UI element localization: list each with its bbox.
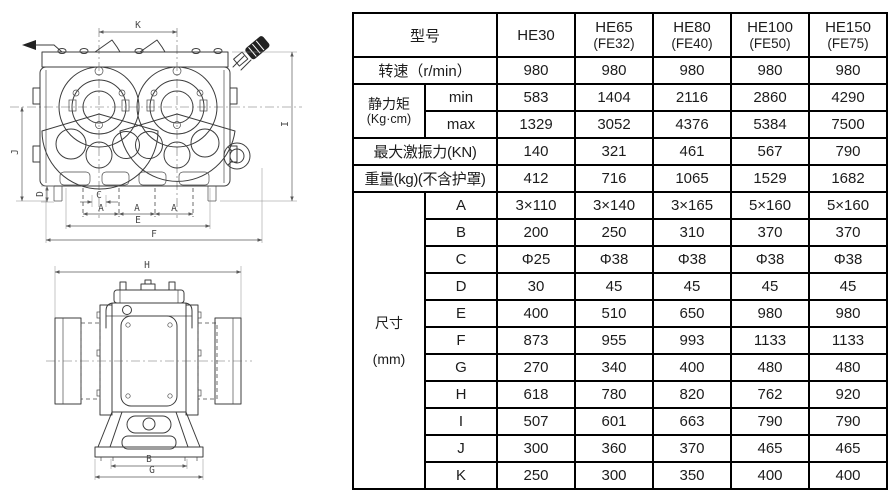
dim-value: 45 [809, 273, 887, 300]
max-value: 5384 [731, 111, 809, 138]
dim-label-c: C [96, 190, 102, 201]
dim-row-d: D 30 45 45 45 45 [353, 273, 887, 300]
dim-value: 465 [809, 435, 887, 462]
dim-label-i: I [280, 121, 291, 127]
max-excitation-row: 最大激振力(KN) 140 321 461 567 790 [353, 138, 887, 165]
dim-value: 270 [497, 354, 575, 381]
dim-value: 45 [575, 273, 653, 300]
dim-row-i: I 507 601 663 790 790 [353, 408, 887, 435]
dim-key: D [425, 273, 497, 300]
dim-value: 370 [731, 219, 809, 246]
dim-label-e: E [135, 215, 141, 226]
dim-value: 663 [653, 408, 731, 435]
dim-value: 465 [731, 435, 809, 462]
weight-value: 1065 [653, 165, 731, 192]
dim-value: 350 [653, 462, 731, 489]
dim-value: 370 [653, 435, 731, 462]
dim-value: 3×110 [497, 192, 575, 219]
dim-row-c: C Φ25 Φ38 Φ38 Φ38 Φ38 [353, 246, 887, 273]
excitation-value: 321 [575, 138, 653, 165]
min-label: min [425, 84, 497, 111]
dim-value: 3×140 [575, 192, 653, 219]
model-he100: HE100 (FE50) [731, 13, 809, 57]
dim-value: 1133 [809, 327, 887, 354]
dim-label-a2: A [134, 203, 140, 214]
dim-label-b: B [146, 454, 152, 465]
speed-value: 980 [653, 57, 731, 84]
mount-hole [143, 418, 155, 430]
dim-value: Φ38 [575, 246, 653, 273]
eccentric-weights [42, 114, 235, 189]
static-moment-max-row: max 1329 3052 4376 5384 7500 [353, 111, 887, 138]
dim-value: 200 [497, 219, 575, 246]
min-value: 583 [497, 84, 575, 111]
dim-label-a3: A [171, 203, 177, 214]
dim-label-a1: A [98, 203, 104, 214]
dim-value: 993 [653, 327, 731, 354]
dim-key: E [425, 300, 497, 327]
max-value: 7500 [809, 111, 887, 138]
dim-value: 820 [653, 381, 731, 408]
dim-row-j: J 300 360 370 465 465 [353, 435, 887, 462]
spec-table-container: 型号 HE30 HE65 (FE32) HE80 (FE40) HE100 (F… [352, 12, 888, 490]
dim-value: 300 [497, 435, 575, 462]
max-label: max [425, 111, 497, 138]
weight-value: 1529 [731, 165, 809, 192]
dim-key: I [425, 408, 497, 435]
dimensions-label: 尺寸 (mm) [353, 192, 425, 489]
dim-key: G [425, 354, 497, 381]
dim-label-h: H [144, 260, 150, 271]
speed-value: 980 [809, 57, 887, 84]
speed-value: 980 [497, 57, 575, 84]
weight-value: 412 [497, 165, 575, 192]
dim-key: H [425, 381, 497, 408]
dim-key: K [425, 462, 497, 489]
dim-value: 400 [653, 354, 731, 381]
dim-value: 45 [653, 273, 731, 300]
speed-value: 980 [731, 57, 809, 84]
front-view: K I J D C A A A E [10, 20, 302, 243]
dim-value: Φ38 [809, 246, 887, 273]
dim-value: 955 [575, 327, 653, 354]
model-row-label: 型号 [353, 13, 497, 57]
dim-value: 780 [575, 381, 653, 408]
dim-value: 790 [809, 408, 887, 435]
dim-value: 650 [653, 300, 731, 327]
dim-value: Φ38 [653, 246, 731, 273]
dim-value: 3×165 [653, 192, 731, 219]
dim-row-f: F 873 955 993 1133 1133 [353, 327, 887, 354]
min-value: 2116 [653, 84, 731, 111]
dim-key: A [425, 192, 497, 219]
dim-label-f: F [151, 229, 157, 240]
dim-row-k: K 250 300 350 400 400 [353, 462, 887, 489]
dim-value: 790 [731, 408, 809, 435]
dim-value: 400 [809, 462, 887, 489]
excitation-value: 567 [731, 138, 809, 165]
dim-row-g: G 270 340 400 480 480 [353, 354, 887, 381]
weight-value: 716 [575, 165, 653, 192]
oil-hole [123, 306, 132, 315]
dim-value: 310 [653, 219, 731, 246]
dim-value: 618 [497, 381, 575, 408]
section-arrow-icon [22, 40, 36, 50]
dim-value: 250 [575, 219, 653, 246]
side-view: H [46, 260, 252, 480]
dim-value: Φ25 [497, 246, 575, 273]
max-value: 3052 [575, 111, 653, 138]
dim-key: C [425, 246, 497, 273]
min-value: 2860 [731, 84, 809, 111]
dim-value: 5×160 [809, 192, 887, 219]
model-he80: HE80 (FE40) [653, 13, 731, 57]
model-he150: HE150 (FE75) [809, 13, 887, 57]
static-moment-min-row: 静力矩 (Kg·cm) min 583 1404 2116 2860 4290 [353, 84, 887, 111]
dim-value: Φ38 [731, 246, 809, 273]
dim-value: 920 [809, 381, 887, 408]
dim-value: 980 [809, 300, 887, 327]
excitation-value: 140 [497, 138, 575, 165]
dim-value: 507 [497, 408, 575, 435]
dim-label-g: G [149, 465, 155, 476]
dim-value: 1133 [731, 327, 809, 354]
dim-value: 45 [731, 273, 809, 300]
dim-row-b: B 200 250 310 370 370 [353, 219, 887, 246]
dim-label-j: J [10, 149, 21, 155]
speed-value: 980 [575, 57, 653, 84]
dim-value: 480 [809, 354, 887, 381]
dim-value: 510 [575, 300, 653, 327]
dim-key: B [425, 219, 497, 246]
static-moment-label: 静力矩 (Kg·cm) [353, 84, 425, 138]
spec-table: 型号 HE30 HE65 (FE32) HE80 (FE40) HE100 (F… [352, 12, 888, 490]
min-value: 1404 [575, 84, 653, 111]
dim-value: 5×160 [731, 192, 809, 219]
dim-row-e: E 400 510 650 980 980 [353, 300, 887, 327]
max-value: 4376 [653, 111, 731, 138]
dim-value: 980 [731, 300, 809, 327]
dim-row-a: 尺寸 (mm) A 3×110 3×140 3×165 5×160 5×160 [353, 192, 887, 219]
dim-key: J [425, 435, 497, 462]
dim-value: 250 [497, 462, 575, 489]
dim-value: 601 [575, 408, 653, 435]
weight-label: 重量(kg)(不含护罩) [353, 165, 497, 192]
dim-value: 300 [575, 462, 653, 489]
dim-row-h: H 618 780 820 762 920 [353, 381, 887, 408]
dim-key: F [425, 327, 497, 354]
model-header-row: 型号 HE30 HE65 (FE32) HE80 (FE40) HE100 (F… [353, 13, 887, 57]
lifting-lug [140, 40, 165, 52]
technical-drawing: K I J D C A A A E [0, 0, 350, 481]
max-excitation-label: 最大激振力(KN) [353, 138, 497, 165]
speed-row: 转速（r/min） 980 980 980 980 980 [353, 57, 887, 84]
exciter-drawing-svg: K I J D C A A A E [0, 0, 350, 481]
breather-plug [233, 35, 271, 70]
weight-row: 重量(kg)(不含护罩) 412 716 1065 1529 1682 [353, 165, 887, 192]
model-he30: HE30 [497, 13, 575, 57]
dim-value: 340 [575, 354, 653, 381]
dim-value: 400 [497, 300, 575, 327]
dim-label-k: K [135, 20, 141, 31]
excitation-value: 790 [809, 138, 887, 165]
model-he65: HE65 (FE32) [575, 13, 653, 57]
dim-value: 30 [497, 273, 575, 300]
dim-label-d: D [35, 191, 46, 197]
excitation-value: 461 [653, 138, 731, 165]
max-value: 1329 [497, 111, 575, 138]
dim-value: 762 [731, 381, 809, 408]
dim-value: 873 [497, 327, 575, 354]
min-value: 4290 [809, 84, 887, 111]
dim-value: 370 [809, 219, 887, 246]
dim-value: 360 [575, 435, 653, 462]
dim-value: 400 [731, 462, 809, 489]
weight-value: 1682 [809, 165, 887, 192]
dim-value: 480 [731, 354, 809, 381]
speed-label: 转速（r/min） [353, 57, 497, 84]
